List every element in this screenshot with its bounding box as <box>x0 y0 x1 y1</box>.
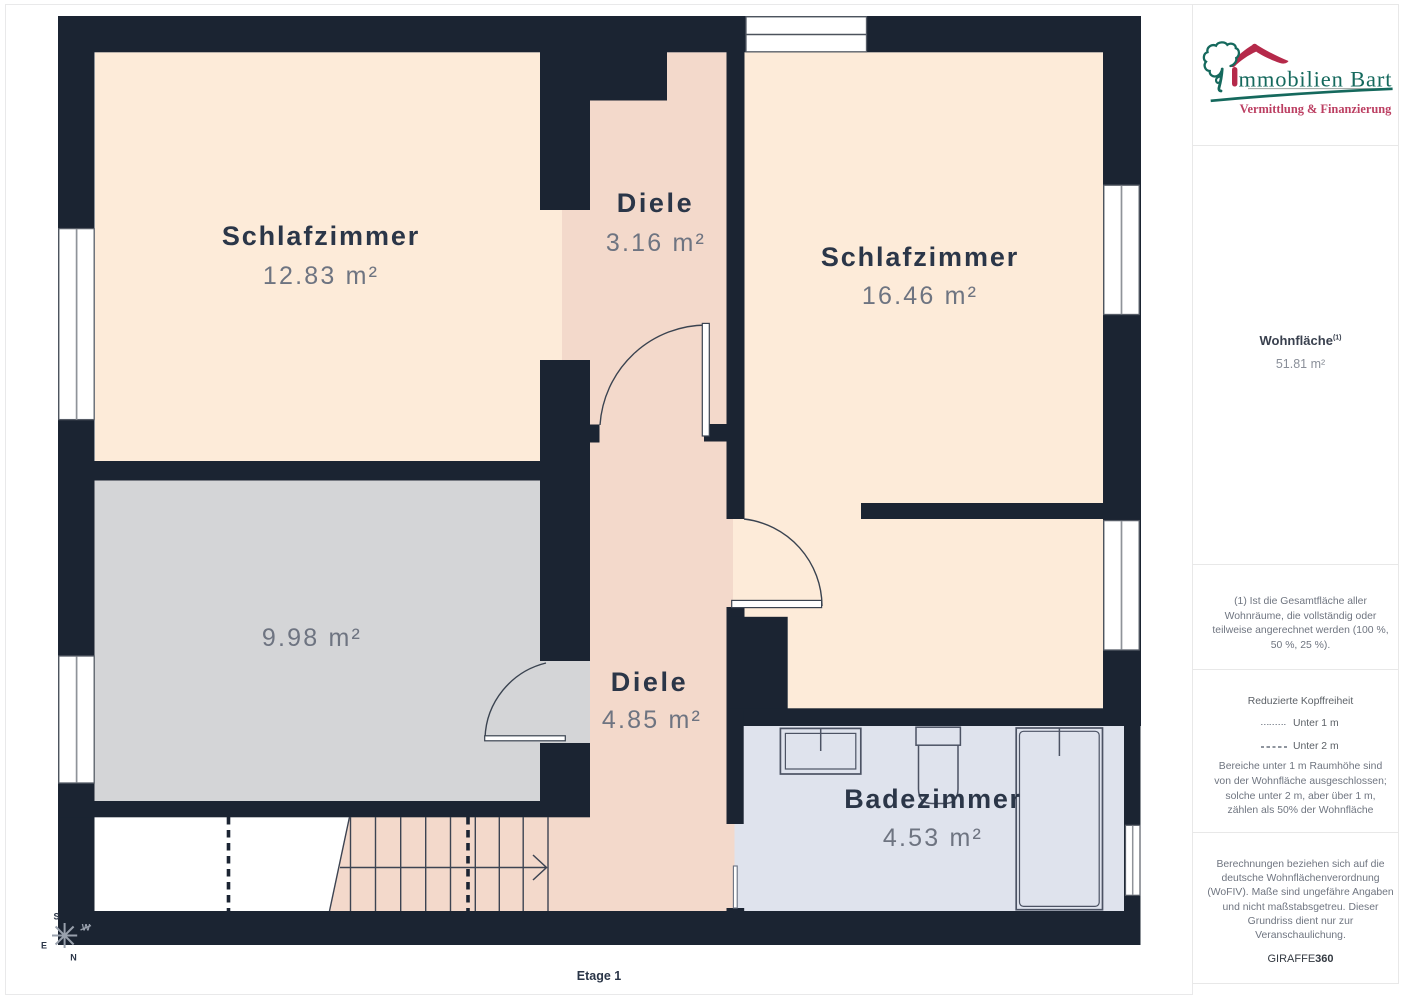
svg-text:12.83 m²: 12.83 m² <box>263 262 379 290</box>
svg-text:Vermittlung & Finanzierung: Vermittlung & Finanzierung <box>1240 102 1392 116</box>
svg-text:Schlafzimmer: Schlafzimmer <box>821 242 1019 272</box>
svg-text:Diele: Diele <box>611 667 689 697</box>
svg-text:4.53 m²: 4.53 m² <box>883 824 983 852</box>
svg-text:Badezimmer: Badezimmer <box>844 784 1022 814</box>
svg-text:S: S <box>53 912 59 922</box>
svg-text:N: N <box>70 953 77 963</box>
svg-text:16.46 m²: 16.46 m² <box>862 282 978 310</box>
svg-text:E: E <box>41 941 47 951</box>
svg-text:Diele: Diele <box>617 188 695 218</box>
svg-text:3.16 m²: 3.16 m² <box>606 229 706 257</box>
svg-text:W: W <box>82 923 91 933</box>
svg-text:9.98 m²: 9.98 m² <box>262 624 362 652</box>
svg-text:Etage 1: Etage 1 <box>577 969 622 983</box>
svg-text:mmobilien Bart: mmobilien Bart <box>1239 66 1393 91</box>
svg-text:4.85 m²: 4.85 m² <box>602 706 702 734</box>
svg-text:Schlafzimmer: Schlafzimmer <box>222 221 420 251</box>
